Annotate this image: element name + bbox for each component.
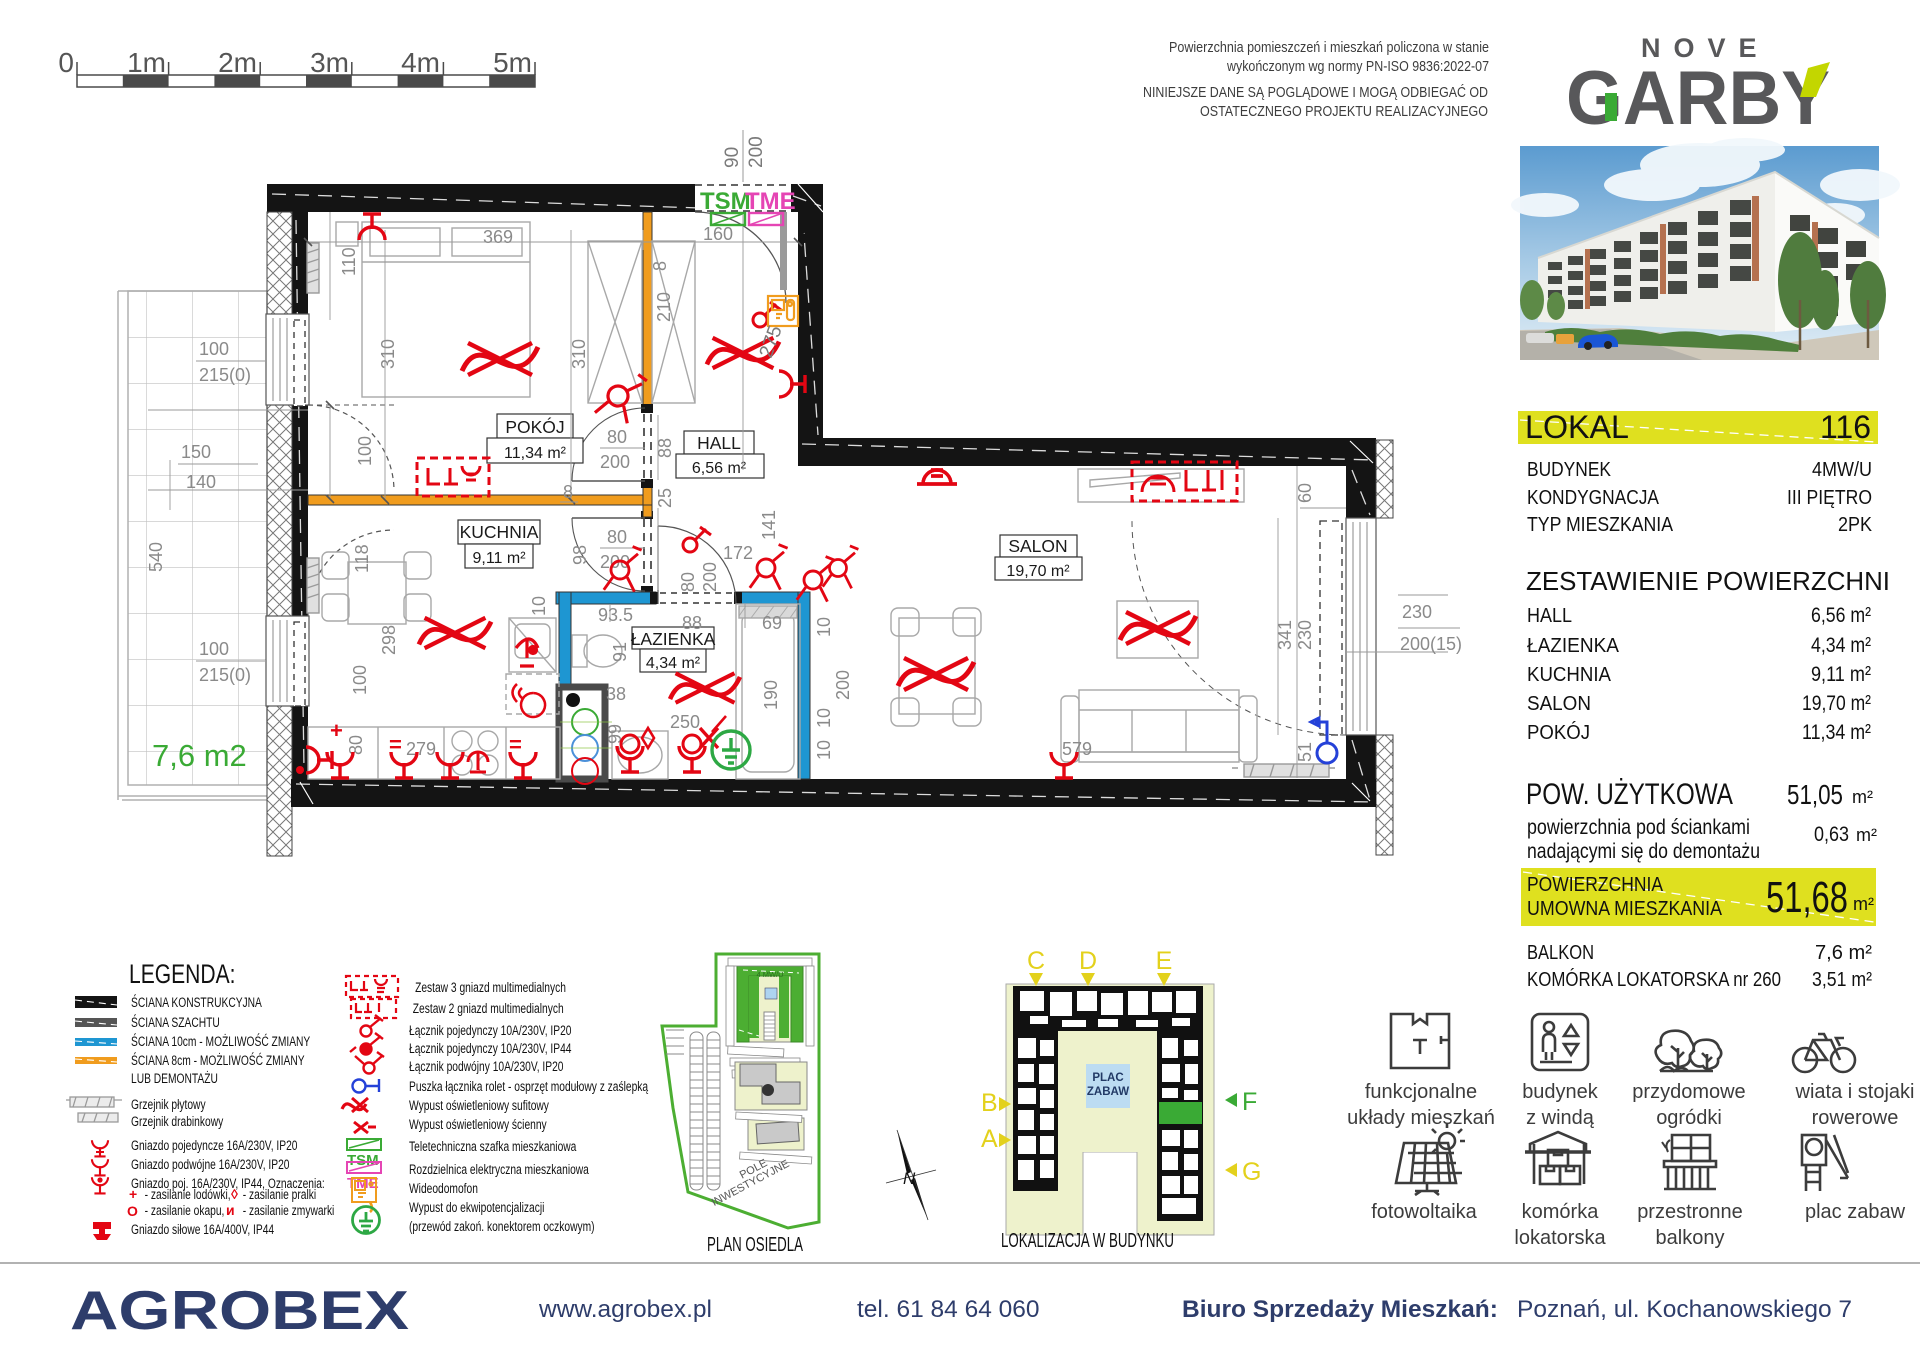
svg-text:88: 88: [655, 438, 675, 458]
svg-text:KUCHNIA: KUCHNIA: [1527, 664, 1612, 686]
svg-text:AGROBEX: AGROBEX: [70, 1279, 409, 1341]
svg-text:+: +: [129, 1186, 137, 1202]
svg-text:Wypust do ekwipotencjalizacji: Wypust do ekwipotencjalizacji: [409, 1200, 544, 1216]
svg-text:4m: 4m: [401, 47, 440, 78]
svg-text:80: 80: [346, 735, 366, 755]
svg-text:88: 88: [682, 613, 702, 633]
svg-text:3m: 3m: [310, 47, 349, 78]
svg-text:190: 190: [761, 680, 781, 710]
svg-text:ŚCIANA KONSTRUKCYJNA: ŚCIANA KONSTRUKCYJNA: [131, 993, 262, 1010]
svg-text:Łącznik pojedynczy 10A/230V, I: Łącznik pojedynczy 10A/230V, IP44: [409, 1041, 572, 1057]
svg-text:TYP MIESZKANIA: TYP MIESZKANIA: [1527, 514, 1674, 536]
svg-text:9,11 m²: 9,11 m²: [1811, 663, 1871, 686]
svg-text:Rozdzielnica elektryczna miesz: Rozdzielnica elektryczna mieszkaniowa: [409, 1162, 589, 1178]
svg-text:E: E: [1156, 947, 1173, 975]
svg-text:80: 80: [678, 572, 698, 592]
svg-text:www.agrobex.pl: www.agrobex.pl: [538, 1296, 712, 1323]
svg-text:51,05: 51,05: [1787, 779, 1843, 810]
svg-text:5m: 5m: [493, 47, 532, 78]
svg-text:m²: m²: [1853, 894, 1874, 914]
svg-text:powierzchnia pod ściankami: powierzchnia pod ściankami: [1527, 816, 1750, 839]
svg-text:Biuro Sprzedaży Mieszkań:: Biuro Sprzedaży Mieszkań:: [1182, 1296, 1498, 1323]
svg-text:210: 210: [654, 292, 674, 322]
svg-text:ŚCIANA SZACHTU: ŚCIANA SZACHTU: [131, 1013, 220, 1030]
svg-text:4,34 m²: 4,34 m²: [1811, 634, 1871, 657]
svg-text:230: 230: [1402, 602, 1432, 622]
svg-text:10: 10: [529, 596, 549, 616]
svg-text:ŁAZIENKA: ŁAZIENKA: [1527, 635, 1620, 657]
svg-text:PLAC: PLAC: [1092, 1072, 1123, 1084]
svg-text:POKÓJ: POKÓJ: [1527, 721, 1590, 744]
svg-text:O: O: [127, 1203, 138, 1219]
svg-text:przydomowe: przydomowe: [1632, 1081, 1745, 1103]
svg-text:Puszka łącznika rolet - osprzę: Puszka łącznika rolet - osprzęt modułowy…: [409, 1079, 648, 1095]
svg-text:- zasilanie okapu,: - zasilanie okapu,: [145, 1203, 225, 1219]
svg-text:0,63: 0,63: [1814, 823, 1849, 846]
svg-text:tel. 61 84 64 060: tel. 61 84 64 060: [857, 1296, 1040, 1323]
svg-text:200(15): 200(15): [1400, 634, 1462, 654]
svg-text:51,68: 51,68: [1766, 873, 1848, 922]
svg-text:19,70 m²: 19,70 m²: [1006, 563, 1070, 580]
svg-text:wiata i stojaki: wiata i stojaki: [1795, 1081, 1915, 1103]
svg-text:2PK: 2PK: [1838, 514, 1873, 536]
svg-text:NINIEJSZE DANE SĄ POGLĄDOWE I: NINIEJSZE DANE SĄ POGLĄDOWE I MOGĄ ODBIE…: [1143, 84, 1488, 101]
svg-text:9,11 m²: 9,11 m²: [472, 550, 526, 567]
svg-text:B: B: [981, 1089, 998, 1117]
svg-text:Wypust oświetleniowy sufitowy: Wypust oświetleniowy sufitowy: [409, 1098, 549, 1114]
svg-text:POKÓJ: POKÓJ: [505, 416, 564, 437]
svg-text:215(0): 215(0): [199, 365, 251, 385]
svg-text:11,34 m²: 11,34 m²: [1802, 721, 1871, 744]
svg-text:93.5: 93.5: [598, 605, 633, 625]
svg-text:10: 10: [814, 708, 834, 728]
svg-text:układy mieszkań: układy mieszkań: [1347, 1107, 1495, 1129]
svg-text:310: 310: [378, 339, 398, 369]
svg-text:ZABAW: ZABAW: [1087, 1086, 1129, 1098]
svg-text:Grzejnik płytowy: Grzejnik płytowy: [131, 1097, 206, 1113]
svg-text:Zestaw 3 gniazd multimedialnyc: Zestaw 3 gniazd multimedialnych: [415, 980, 566, 996]
svg-text:110: 110: [339, 247, 359, 276]
svg-text:Grzejnik drabinkowy: Grzejnik drabinkowy: [131, 1114, 223, 1130]
svg-text:298: 298: [379, 625, 399, 655]
svg-text:6,56 m²: 6,56 m²: [1811, 604, 1871, 627]
svg-text:funkcjonalne: funkcjonalne: [1365, 1081, 1477, 1103]
svg-text:N: N: [903, 1169, 916, 1188]
svg-text:Gniazdo pojedyncze 16A/230V, I: Gniazdo pojedyncze 16A/230V, IP20: [131, 1138, 298, 1154]
svg-text:TSM: TSM: [347, 1152, 379, 1169]
svg-text:4,34 m²: 4,34 m²: [646, 655, 701, 672]
svg-text:ŁAZIENKA: ŁAZIENKA: [631, 629, 716, 649]
svg-text:140: 140: [186, 472, 216, 492]
svg-text:7,6 m2: 7,6 m2: [152, 738, 247, 773]
svg-text:60: 60: [1295, 483, 1315, 503]
svg-text:- zasilanie pralki: - zasilanie pralki: [243, 1187, 316, 1203]
svg-text:Gniazdo podwójne 16A/230V, IP2: Gniazdo podwójne 16A/230V, IP20: [131, 1157, 290, 1173]
svg-text:4MW/U: 4MW/U: [1812, 459, 1872, 481]
svg-text:1m: 1m: [127, 47, 166, 78]
svg-text:OSTATECZNEGO PROJEKTU REALIZAC: OSTATECZNEGO PROJEKTU REALIZACYJNEGO: [1200, 103, 1488, 120]
svg-text:nadającymi się do demontażu: nadającymi się do demontażu: [1527, 840, 1760, 863]
svg-text:172: 172: [723, 543, 753, 563]
svg-text:m²: m²: [1852, 787, 1873, 807]
svg-text:200: 200: [746, 136, 767, 168]
svg-text:160: 160: [703, 224, 733, 244]
svg-text:90: 90: [722, 147, 743, 168]
svg-text:2m: 2m: [218, 47, 257, 78]
svg-text:ŚCIANA 10cm - MOŻLIWOŚĆ ZMIANY: ŚCIANA 10cm - MOŻLIWOŚĆ ZMIANY: [131, 1032, 310, 1049]
svg-text:91: 91: [610, 642, 630, 662]
svg-text:Łącznik pojedynczy 10A/230V, I: Łącznik pojedynczy 10A/230V, IP20: [409, 1023, 572, 1039]
svg-text:Wypust oświetleniowy ścienny: Wypust oświetleniowy ścienny: [409, 1117, 547, 1133]
svg-text:D: D: [1079, 947, 1097, 975]
svg-text:Gniazdo siłowe 16A/400V, IP44: Gniazdo siłowe 16A/400V, IP44: [131, 1222, 274, 1238]
svg-text:Wideodomofon: Wideodomofon: [409, 1181, 478, 1197]
svg-text:LOKAL: LOKAL: [1525, 409, 1629, 445]
svg-text:38: 38: [606, 684, 626, 704]
svg-text:KUCHNIA: KUCHNIA: [460, 522, 539, 542]
svg-text:69: 69: [762, 613, 782, 633]
svg-text:341: 341: [1275, 620, 1295, 650]
svg-text:10: 10: [814, 617, 834, 637]
svg-text:◊: ◊: [231, 1186, 238, 1202]
svg-text:Łącznik podwójny 10A/230V, IP2: Łącznik podwójny 10A/230V, IP20: [409, 1059, 564, 1075]
svg-text:LUB DEMONTAŻU: LUB DEMONTAŻU: [131, 1071, 218, 1087]
svg-text:POWIERZCHNIA: POWIERZCHNIA: [1527, 874, 1664, 896]
svg-text:(przewód zakoń. konektorem ocz: (przewód zakoń. konektorem oczkowym): [409, 1219, 595, 1235]
svg-text:TSM: TSM: [700, 188, 751, 215]
svg-text:SALON: SALON: [1008, 536, 1067, 556]
svg-text:A: A: [981, 1125, 998, 1153]
svg-text:lokatorska: lokatorska: [1514, 1227, 1606, 1249]
svg-text:215(0): 215(0): [199, 665, 251, 685]
svg-text:F: F: [1242, 1088, 1257, 1116]
svg-text:19,70 m²: 19,70 m²: [1802, 692, 1871, 715]
svg-text:80: 80: [607, 427, 627, 447]
svg-text:ogródki: ogródki: [1656, 1107, 1722, 1129]
svg-text:Teletechniczna szafka mieszkan: Teletechniczna szafka mieszkaniowa: [409, 1139, 577, 1155]
svg-text:- zasilanie zmywarki: - zasilanie zmywarki: [243, 1203, 335, 1219]
svg-text:100: 100: [350, 665, 370, 695]
svg-text:51: 51: [1295, 742, 1315, 762]
svg-text:plac zabaw: plac zabaw: [1805, 1201, 1906, 1223]
svg-text:25: 25: [655, 488, 675, 508]
svg-text:m²: m²: [1856, 825, 1877, 845]
svg-text:100: 100: [199, 339, 229, 359]
svg-text:Poznań, ul. Kochanowskiego 7: Poznań, ul. Kochanowskiego 7: [1517, 1296, 1852, 1323]
svg-text:ZESTAWIENIE POWIERZCHNI: ZESTAWIENIE POWIERZCHNI: [1526, 566, 1890, 596]
svg-text:TME: TME: [745, 188, 796, 215]
svg-text:BUDYNEK: BUDYNEK: [1527, 459, 1612, 481]
svg-text:100: 100: [199, 639, 229, 659]
svg-text:200: 200: [600, 452, 630, 472]
svg-text:7,6 m²: 7,6 m²: [1815, 942, 1872, 964]
svg-text:11,34 m²: 11,34 m²: [504, 445, 567, 462]
svg-text:230: 230: [1295, 620, 1315, 650]
svg-text:369: 369: [483, 227, 513, 247]
svg-text:SALON: SALON: [1527, 693, 1591, 715]
svg-text:balkony: balkony: [1656, 1227, 1725, 1249]
svg-text:200: 200: [833, 670, 853, 700]
svg-text:116: 116: [1820, 409, 1871, 445]
svg-text:UMOWNA MIESZKANIA: UMOWNA MIESZKANIA: [1527, 898, 1723, 920]
svg-text:540: 540: [146, 542, 166, 572]
svg-text:fotowoltaika: fotowoltaika: [1371, 1201, 1477, 1223]
svg-text:0: 0: [58, 47, 74, 78]
svg-text:III PIĘTRO: III PIĘTRO: [1787, 487, 1872, 509]
svg-text:ᴎ: ᴎ: [226, 1202, 235, 1218]
svg-text:3,51 m²: 3,51 m²: [1812, 969, 1872, 991]
svg-text:z windą: z windą: [1526, 1107, 1595, 1129]
svg-text:8: 8: [650, 261, 670, 271]
svg-text:10: 10: [814, 740, 834, 760]
svg-text:LOKALIZACJA W BUDYNKU: LOKALIZACJA W BUDYNKU: [1001, 1230, 1174, 1252]
svg-text:KONDYGNACJA: KONDYGNACJA: [1527, 487, 1660, 509]
svg-text:200: 200: [700, 562, 720, 592]
svg-text:komórka: komórka: [1522, 1201, 1600, 1223]
svg-text:C: C: [1027, 947, 1045, 975]
svg-text:=: =: [389, 732, 402, 757]
svg-text:HALL: HALL: [697, 433, 741, 453]
svg-text:4 MW/U: 4 MW/U: [756, 970, 783, 979]
svg-text:=: =: [509, 732, 522, 757]
svg-text:8: 8: [563, 482, 573, 502]
svg-text:6,56 m²: 6,56 m²: [692, 460, 747, 477]
svg-text:ŚCIANA 8cm - MOŻLIWOŚĆ ZMIANY: ŚCIANA 8cm - MOŻLIWOŚĆ ZMIANY: [131, 1051, 305, 1068]
svg-text:+: +: [330, 718, 343, 743]
svg-text:150: 150: [181, 442, 211, 462]
svg-text:118: 118: [352, 544, 372, 573]
svg-text:PLAN OSIEDLA: PLAN OSIEDLA: [707, 1234, 803, 1256]
svg-text:310: 310: [569, 339, 589, 369]
svg-text:- zasilanie lodówki,: - zasilanie lodówki,: [145, 1187, 231, 1203]
svg-text:141: 141: [759, 510, 779, 540]
svg-text:250: 250: [670, 712, 700, 732]
svg-text:POW. UŻYTKOWA: POW. UŻYTKOWA: [1526, 778, 1733, 811]
svg-text:przestronne: przestronne: [1637, 1201, 1743, 1223]
svg-text:100: 100: [355, 436, 375, 466]
svg-text:Zestaw 2 gniazd multimedialnyc: Zestaw 2 gniazd multimedialnych: [413, 1001, 564, 1017]
svg-text:HALL: HALL: [1527, 605, 1572, 627]
svg-text:wykończonym wg normy PN-ISO 98: wykończonym wg normy PN-ISO 9836:2022-07: [1226, 58, 1489, 75]
svg-text:80: 80: [607, 527, 627, 547]
svg-text:279: 279: [406, 739, 436, 759]
svg-text:KOMÓRKA LOKATORSKA nr 260: KOMÓRKA LOKATORSKA nr 260: [1527, 968, 1781, 991]
svg-text:98: 98: [570, 545, 590, 565]
svg-text:budynek: budynek: [1522, 1081, 1599, 1103]
svg-text:BALKON: BALKON: [1527, 942, 1594, 964]
svg-text:rowerowe: rowerowe: [1812, 1107, 1899, 1129]
svg-text:Powierzchnia pomieszczeń i mie: Powierzchnia pomieszczeń i mieszkań poli…: [1169, 39, 1489, 56]
svg-text:LEGENDA:: LEGENDA:: [129, 960, 235, 990]
svg-text:G: G: [1242, 1158, 1261, 1186]
